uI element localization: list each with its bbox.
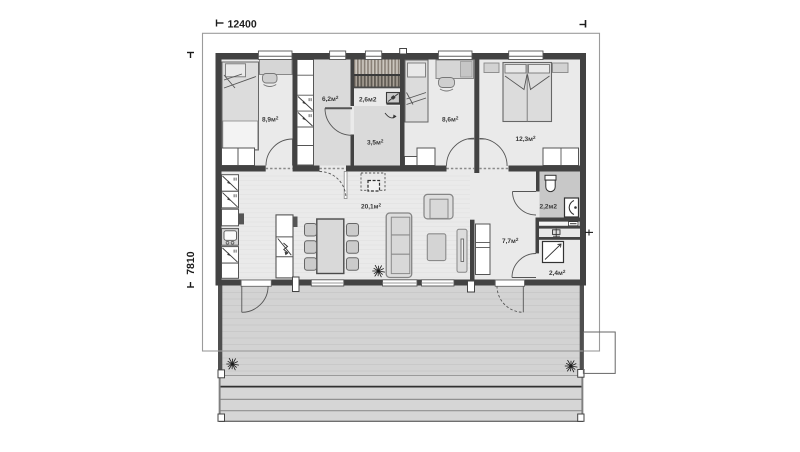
svg-text:2,2м2: 2,2м2 <box>540 204 558 211</box>
svg-text:7810: 7810 <box>185 251 197 275</box>
svg-text:20,1м2: 20,1м2 <box>361 203 381 211</box>
svg-text:12,3м2: 12,3м2 <box>516 135 536 143</box>
svg-text:2,6м2: 2,6м2 <box>359 97 377 104</box>
svg-text:12400: 12400 <box>228 18 257 30</box>
